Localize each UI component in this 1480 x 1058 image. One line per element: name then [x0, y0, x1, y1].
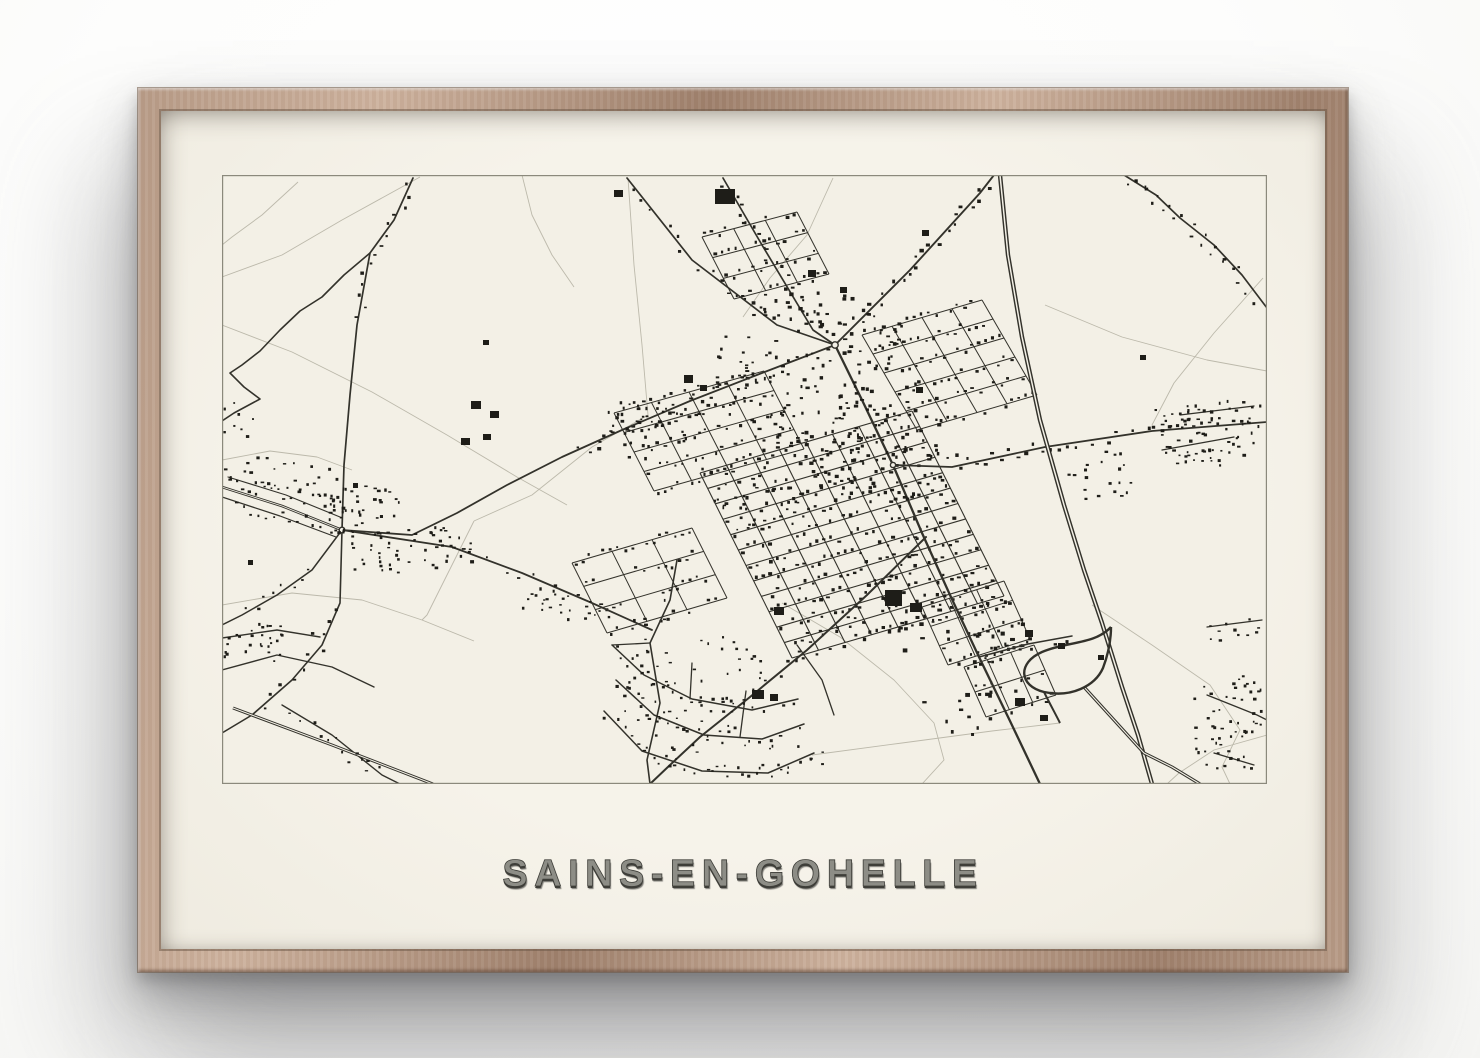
- map-svg: [222, 175, 1267, 784]
- poster-title: SAINS-EN-GOHELLE: [161, 855, 1325, 893]
- picture-frame: SAINS-EN-GOHELLE: [138, 88, 1348, 972]
- map-plot: [222, 175, 1267, 784]
- wall: SAINS-EN-GOHELLE: [0, 0, 1480, 1058]
- poster-paper: SAINS-EN-GOHELLE: [161, 111, 1325, 949]
